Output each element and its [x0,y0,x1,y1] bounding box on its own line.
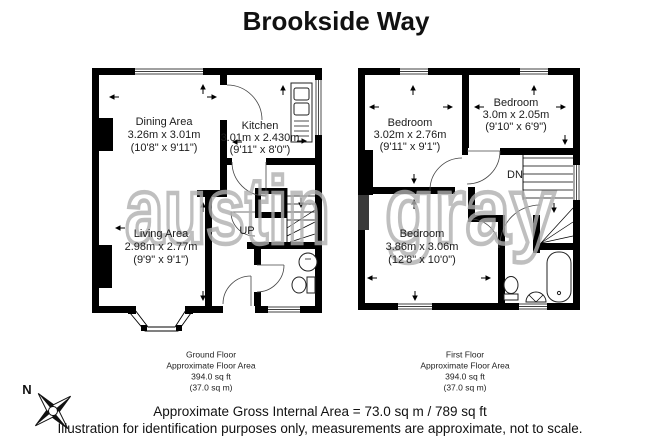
toilet-icon [504,277,518,294]
gf-caption-floor: Ground Floor [186,350,236,360]
gross-internal-area-text: Approximate Gross Internal Area = 73.0 s… [153,404,487,419]
bedroom3-name: Bedroom [400,228,445,240]
gf-caption-area-m: (37.0 sq m) [190,383,233,393]
bedroom3-metric: 3.86m x 3.06m [386,241,459,253]
living-area-name: Living Area [134,228,189,240]
first-floor-caption: First Floor Approximate Floor Area 394.0… [420,350,510,393]
bedroom2-name: Bedroom [494,97,539,109]
dining-area-metric: 3.26m x 3.01m [128,129,201,141]
gf-caption-area-ft: 394.0 sq ft [191,372,231,382]
living-area-label: Living Area 2.98m x 2.77m (9'9" x 9'1") [125,228,198,266]
floorplan-page: austin gray Brookside Way Dining Area 3.… [0,0,670,447]
gf-caption-area-label: Approximate Floor Area [166,361,256,371]
stairs-dn-label: DN [507,169,523,181]
dining-area-label: Dining Area 3.26m x 3.01m (10'8" x 9'11"… [128,116,201,154]
disclaimer-text: Illustration for identification purposes… [57,421,582,436]
bedroom2-imperial: (9'10" x 6'9") [485,121,547,133]
bedroom2-metric: 3.0m x 2.05m [483,109,550,121]
living-area-metric: 2.98m x 2.77m [125,241,198,253]
ff-caption-area-label: Approximate Floor Area [420,361,510,371]
kitchen-name: Kitchen [242,120,279,132]
bedroom1-imperial: (9'11" x 9'1") [380,141,441,153]
living-area-imperial: (9'9" x 9'1") [133,254,188,266]
compass-north-label: N [22,382,31,397]
bay-window [128,306,193,331]
kitchen-label: Kitchen 3.01m x 2.430m (9'11" x 8'0") [221,120,300,156]
stairs-up-label: UP [239,225,254,237]
ff-caption-area-ft: 394.0 sq ft [445,372,485,382]
dining-area-name: Dining Area [136,116,194,128]
ground-floor-caption: Ground Floor Approximate Floor Area 394.… [166,350,256,393]
floorplan-canvas: austin gray Brookside Way Dining Area 3.… [0,0,670,447]
bedroom1-label: Bedroom 3.02m x 2.76m (9'11" x 9'1") [374,117,447,153]
ff-caption-floor: First Floor [446,350,484,360]
dining-area-imperial: (10'8" x 9'11") [131,142,198,154]
sink-icon [526,292,546,302]
ff-caption-area-m: (37.0 sq m) [444,383,487,393]
toilet-icon [292,277,306,293]
plan-title: Brookside Way [243,6,430,36]
bedroom3-imperial: (12'8" x 10'0") [388,254,456,266]
kitchen-imperial: (9'11" x 8'0") [230,144,291,156]
bedroom1-metric: 3.02m x 2.76m [374,129,447,141]
bedroom1-name: Bedroom [388,117,433,129]
kitchen-metric: 3.01m x 2.430m [221,132,300,144]
bedroom2-label: Bedroom 3.0m x 2.05m (9'10" x 6'9") [483,97,550,133]
